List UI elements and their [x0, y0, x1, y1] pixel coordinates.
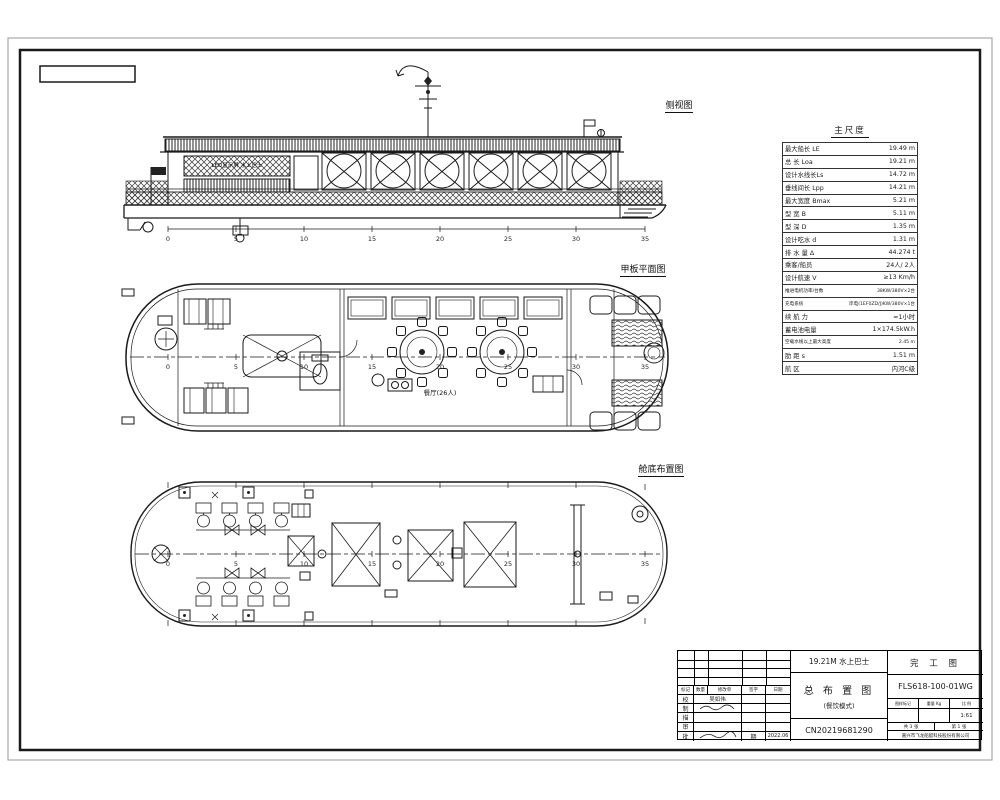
station-number: 30 [572, 560, 580, 568]
seat-row [184, 299, 248, 413]
station-number: 20 [436, 560, 444, 568]
deck-plan-view: 0 5 10 15 20 25 30 35 [122, 284, 668, 431]
door-arc [340, 340, 582, 385]
spec-row: 航 区内河C级 [783, 362, 917, 375]
hatch [632, 506, 648, 522]
rev-header-doc: 修改单 [708, 685, 742, 695]
drawing-stage: 完 工 图 [888, 651, 983, 675]
spec-row: 乘客/船员24人/ 2人 [783, 259, 917, 272]
project-name: 19.21M 水上巴士 [791, 651, 887, 673]
spec-row: 充电系统岸电(1EF0ZD/J)KW/380V×1台 [783, 298, 917, 311]
spec-row: 型 深 D1.35 m [783, 220, 917, 233]
lounge [590, 296, 664, 430]
scale-value: 1:61 [950, 709, 983, 723]
drawing-subtitle: (餐饮模式) [823, 700, 854, 710]
sheet-total: 共 3 张 [888, 723, 935, 731]
center-table [243, 335, 321, 377]
spec-row: 空载水线以上最大高度2.45 m [783, 336, 917, 349]
spec-row: 续 航 力≈1小时 [783, 311, 917, 324]
spec-row: 肋 距 s1.51 m [783, 349, 917, 362]
tank [332, 523, 380, 586]
title-block: 标记 数量 修改单 签字 日期 校 吴如伟 制 描 审 批 期 2022.06 … [677, 650, 982, 740]
station-number: 10 [300, 363, 308, 371]
sign-row-label: 批 [678, 732, 694, 741]
station-number: 15 [368, 363, 376, 371]
side-view: 0 5 10 15 20 25 30 35 [124, 66, 666, 243]
bilge-plan-label: 舱底布置图 [618, 462, 704, 475]
cabin-windows [322, 153, 611, 190]
station-number: 15 [368, 560, 376, 568]
station-number: 15 [368, 235, 376, 243]
spec-row: 垂线间长 Lpp14.21 m [783, 182, 917, 195]
dining-table [468, 318, 537, 387]
drawing-title-text: 总 布 置 图 [804, 682, 875, 697]
sign-row-label: 描 [678, 713, 694, 722]
hdr-weight: 重量 Kg [919, 699, 950, 709]
spec-row: 推进电机功率/台数38KW/380V×2台 [783, 285, 917, 298]
dining-room-label: 餐厅(26人) [403, 387, 477, 397]
spec-row: 设计水线长Ls14.72 m [783, 169, 917, 182]
station-number: 25 [504, 235, 512, 243]
company-name: 嘉兴市飞龙船艇科技股份有限公司 [888, 731, 983, 741]
station-number: 10 [300, 560, 308, 568]
station-number: 35 [641, 363, 649, 371]
spec-row: 型 宽 B5.11 m [783, 207, 917, 220]
station-number: 10 [300, 235, 308, 243]
rev-header-sign: 签字 [742, 685, 766, 695]
spec-row: 最大船长 LE19.49 m [783, 143, 917, 156]
station-number: 30 [572, 363, 580, 371]
station-number: 0 [166, 235, 170, 243]
main-dimensions-table: 主尺度 最大船长 LE19.49 m 总 长 Loa19.21 m 设计水线长L… [782, 124, 918, 375]
station-number: 20 [436, 235, 444, 243]
deck-plan-label: 甲板平面图 [600, 262, 686, 275]
sign-row-label: 校 [678, 695, 694, 704]
signature-scribble [694, 732, 742, 741]
station-number: 20 [436, 363, 444, 371]
hull [124, 205, 666, 218]
propeller-icon [128, 218, 153, 232]
station-number: 5 [234, 560, 238, 568]
station-number: 0 [166, 363, 170, 371]
sign-row-label: 审 [678, 723, 694, 732]
pump-group [196, 503, 290, 606]
signature-scribble [694, 704, 742, 713]
station-number: 35 [641, 235, 649, 243]
drawing-number: FLS618-100-01WG [888, 675, 983, 699]
dining-table [388, 318, 457, 387]
rev-header-mark: 标记 [678, 685, 694, 695]
side-view-label: 侧视图 [648, 98, 710, 111]
rev-header-date: 日期 [766, 685, 790, 695]
rev-header-qty: 数量 [694, 685, 708, 695]
shaft [570, 505, 585, 604]
revision-box [40, 66, 135, 82]
drawing-sheet: 0 5 10 15 20 25 30 35 [0, 0, 1000, 800]
spec-row: 蓄电池电量1×174.5kW.h [783, 323, 917, 336]
station-number: 5 [234, 363, 238, 371]
hull-outline [126, 284, 668, 431]
led-screen-label: LED显示屏 水上巴士 [186, 161, 288, 169]
station-number: 30 [572, 235, 580, 243]
station-number: 35 [641, 560, 649, 568]
hdr-mark: 图样标记 [888, 699, 919, 709]
station-number: 25 [504, 363, 512, 371]
tank [408, 530, 453, 581]
panel [292, 504, 310, 517]
steps [620, 205, 656, 218]
station-number: 5 [234, 235, 238, 243]
approval-date: 2022.06 [766, 732, 790, 741]
station-number: 0 [166, 560, 170, 568]
sheet-current: 第 1 张 [935, 723, 983, 731]
sign-row-name: 吴如伟 [694, 695, 742, 704]
spec-row: 最大宽度 Bmax5.21 m [783, 195, 917, 208]
spec-row: 排 水 量 Δ44.274 t [783, 246, 917, 259]
spec-row: 总 长 Loa19.21 m [783, 156, 917, 169]
serial-number: CN20219681290 [791, 719, 887, 741]
spec-table-title: 主尺度 [782, 124, 918, 136]
mast-icon [396, 66, 441, 137]
station-number: 25 [504, 560, 512, 568]
sign-row-label: 制 [678, 704, 694, 713]
bilge-plan-view: 0 5 10 15 20 25 30 35 [131, 482, 667, 626]
cabinet-row [348, 297, 562, 319]
aft-mast-icon [584, 120, 605, 137]
date-label: 期 [742, 732, 766, 741]
hdr-scale: 比 例 [950, 699, 983, 709]
spec-row: 设计吃水 d1.31 m [783, 233, 917, 246]
toilet [300, 352, 340, 390]
spec-row: 设计航速 V≥13 Km/h [783, 272, 917, 285]
drawing-title: 总 布 置 图 (餐饮模式) [791, 673, 887, 719]
